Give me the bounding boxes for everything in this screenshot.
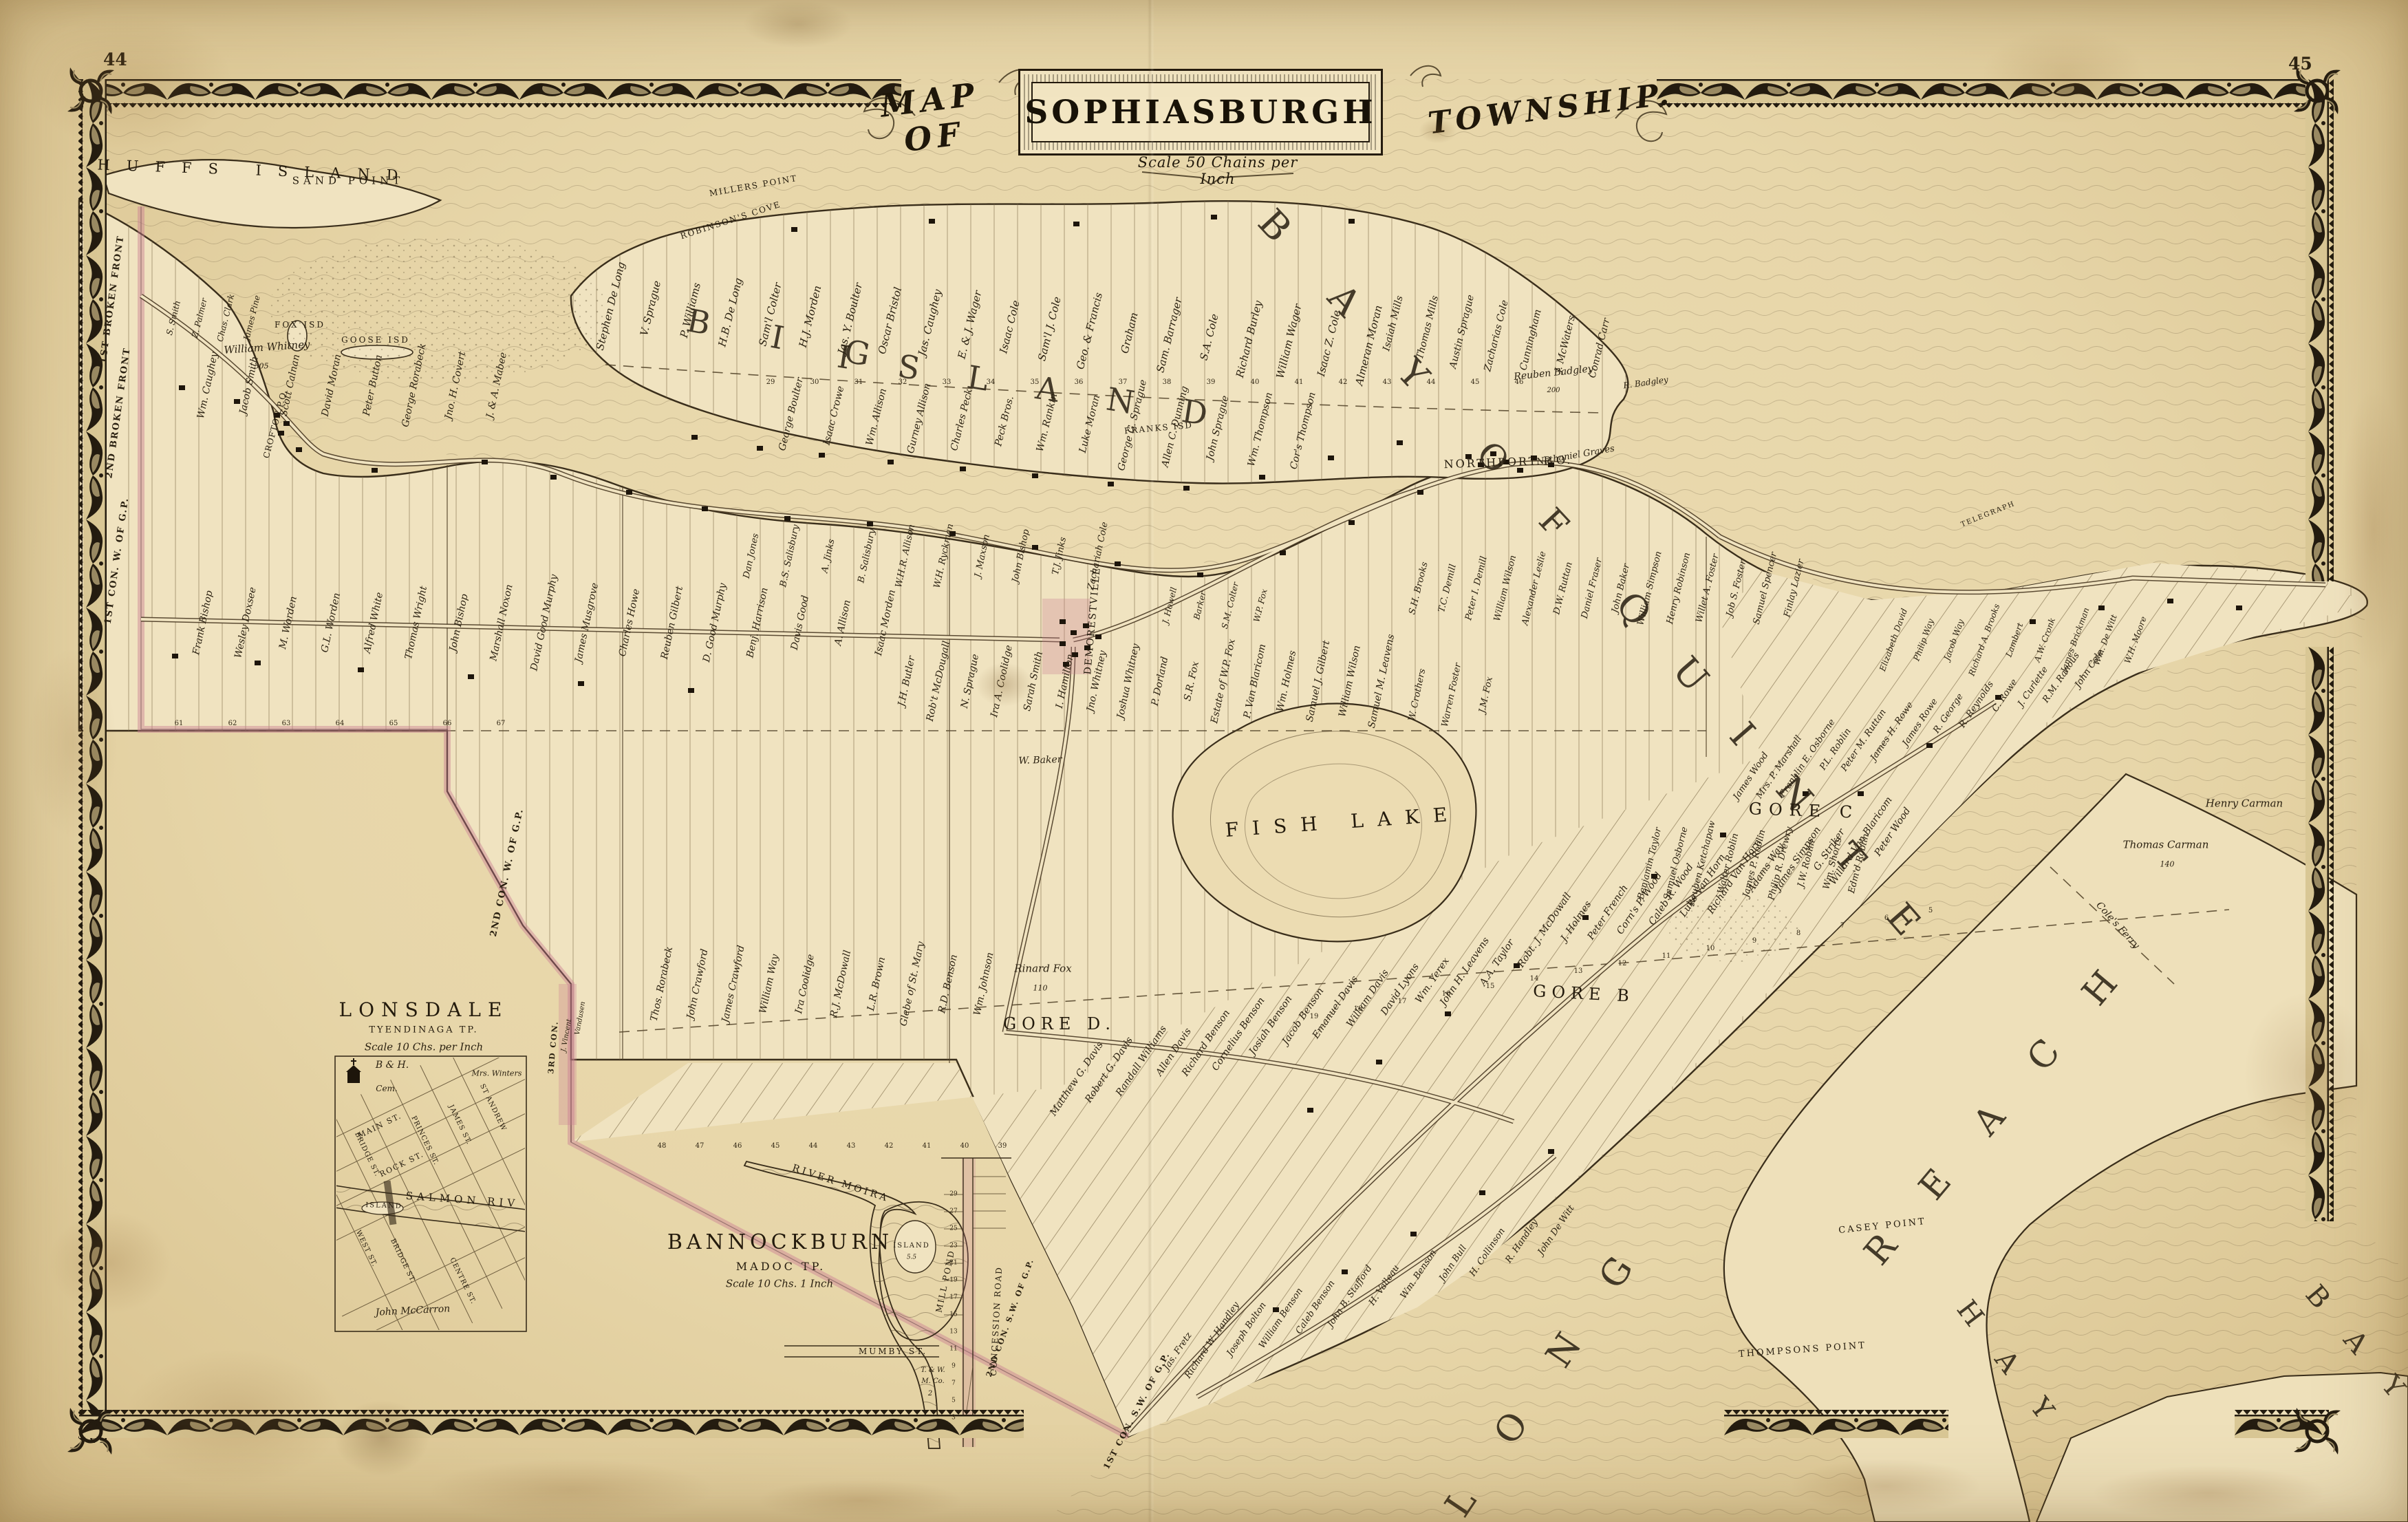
marsh-shoal <box>268 237 612 382</box>
third-con-pink-strip <box>559 984 577 1125</box>
map-canvas <box>0 0 2408 1522</box>
page-number-left: 44 <box>103 50 127 69</box>
marsh-gore-c <box>1668 896 1799 962</box>
map-scale-note: Scale 50 Chains per Inch <box>1121 154 1314 187</box>
title-cartouche: SOPHIASBURGH <box>1018 69 1383 156</box>
map-sheet: MAP OF SOPHIASBURGH TOWNSHIP. Scale 50 C… <box>0 0 2408 1522</box>
bannockburn-island <box>894 1221 936 1273</box>
page-number-right: 45 <box>2288 54 2312 74</box>
salmon-river-island <box>362 1202 403 1214</box>
map-title-main: SOPHIASBURGH <box>1020 71 1381 153</box>
concession-road-tint <box>962 1158 976 1447</box>
church-icon <box>346 1058 361 1083</box>
lonsdale-inset <box>258 1027 611 1373</box>
